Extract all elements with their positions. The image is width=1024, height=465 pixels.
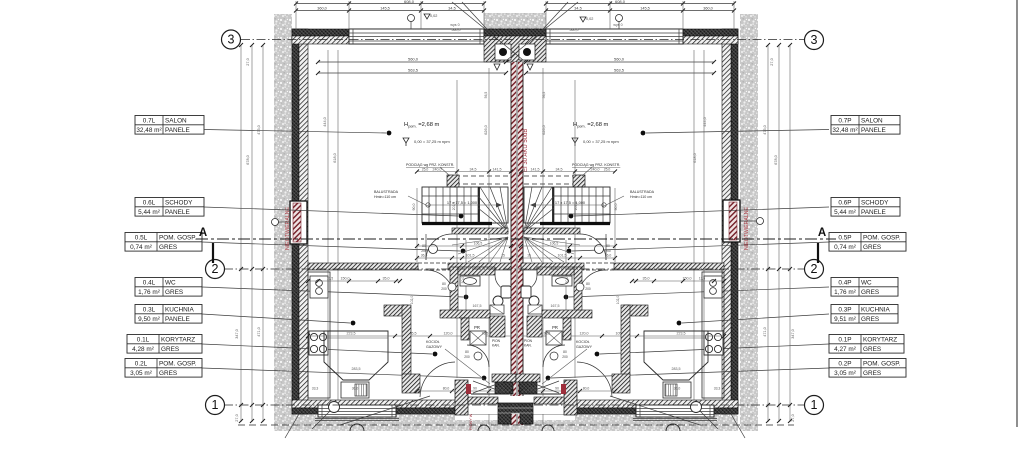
svg-text:0.4L: 0.4L xyxy=(143,280,156,287)
svg-text:50,0: 50,0 xyxy=(461,277,465,284)
svg-text:80: 80 xyxy=(586,282,590,286)
svg-text:PR: PR xyxy=(552,325,558,330)
svg-text:27,0: 27,0 xyxy=(235,414,239,421)
svg-text:KAN.: KAN. xyxy=(524,344,532,348)
svg-text:15: 15 xyxy=(501,254,505,258)
svg-text:678,0: 678,0 xyxy=(246,155,250,165)
svg-text:GRES: GRES xyxy=(159,370,177,377)
svg-text:4,28 m²: 4,28 m² xyxy=(132,346,154,353)
svg-text:80: 80 xyxy=(465,350,469,354)
svg-text:0,02: 0,02 xyxy=(586,17,593,21)
svg-text:27,0: 27,0 xyxy=(791,414,795,421)
svg-text:A: A xyxy=(199,227,207,239)
svg-text:223,5: 223,5 xyxy=(677,332,686,336)
svg-text:106,5: 106,5 xyxy=(550,242,559,246)
svg-text:560,0: 560,0 xyxy=(408,57,419,62)
svg-text:360,0: 360,0 xyxy=(703,7,713,11)
svg-text:GRES: GRES xyxy=(863,346,881,353)
svg-text:2: 2 xyxy=(811,262,818,276)
svg-text:0.6P: 0.6P xyxy=(838,200,851,207)
svg-text:BALUSTRADA: BALUSTRADA xyxy=(630,190,655,194)
svg-text:GRES: GRES xyxy=(161,346,179,353)
svg-text:PANELE: PANELE xyxy=(861,209,886,216)
svg-text:NIEOTWIERALNE: NIEOTWIERALNE xyxy=(744,207,750,250)
svg-text:93,5: 93,5 xyxy=(544,332,551,336)
svg-text:POM. GOSP.: POM. GOSP. xyxy=(159,235,197,242)
svg-text:PANELE: PANELE xyxy=(165,316,190,323)
svg-text:GRES: GRES xyxy=(863,370,881,377)
svg-text:0.3L: 0.3L xyxy=(143,307,156,314)
svg-text:1,76 m²: 1,76 m² xyxy=(138,289,160,296)
svg-text:32,48 m²: 32,48 m² xyxy=(832,127,857,134)
svg-text:13,5: 13,5 xyxy=(699,277,705,281)
svg-text:80,0: 80,0 xyxy=(583,387,590,391)
svg-text:200: 200 xyxy=(464,355,470,359)
svg-text:0,00 = 37,25 m npm: 0,00 = 37,25 m npm xyxy=(583,139,619,144)
svg-text:90,0: 90,0 xyxy=(412,204,416,211)
svg-text:563,5: 563,5 xyxy=(408,68,419,73)
svg-text:0.5P: 0.5P xyxy=(838,235,851,242)
svg-text:17 x 17,5 = 1,000: 17 x 17,5 = 1,000 xyxy=(555,200,586,205)
svg-text:13,5: 13,5 xyxy=(327,277,333,281)
svg-text:200: 200 xyxy=(585,287,591,291)
svg-text:150,0: 150,0 xyxy=(341,277,350,281)
svg-text:145,5: 145,5 xyxy=(380,7,390,11)
svg-text:80: 80 xyxy=(442,282,446,286)
svg-text:471,0: 471,0 xyxy=(763,327,767,337)
svg-text:KOCIOŁ: KOCIOŁ xyxy=(426,340,440,344)
svg-text:475,0: 475,0 xyxy=(257,125,261,135)
svg-text:0.7P: 0.7P xyxy=(838,118,851,125)
svg-text:200: 200 xyxy=(605,249,611,253)
svg-text:618,0: 618,0 xyxy=(333,153,337,163)
svg-text:101,5: 101,5 xyxy=(466,254,475,258)
svg-text:0.7L: 0.7L xyxy=(143,118,156,125)
svg-text:3,05 m²: 3,05 m² xyxy=(834,370,856,377)
svg-text:475,0: 475,0 xyxy=(763,125,767,135)
svg-text:POM. GOSP.: POM. GOSP. xyxy=(159,361,197,368)
svg-text:560,0: 560,0 xyxy=(614,57,625,62)
svg-text:1: 1 xyxy=(212,398,219,412)
svg-text:PANELE: PANELE xyxy=(165,127,190,134)
svg-text:PODCIĄG wg PRZ. KONSTR.: PODCIĄG wg PRZ. KONSTR. xyxy=(572,163,620,167)
svg-text:30,0: 30,0 xyxy=(674,387,681,391)
svg-text:360,0: 360,0 xyxy=(317,7,327,11)
svg-text:33,3: 33,3 xyxy=(312,387,319,391)
svg-text:3: 3 xyxy=(811,33,818,47)
svg-text:0.2L: 0.2L xyxy=(135,361,148,368)
svg-text:PANELE: PANELE xyxy=(861,127,886,134)
svg-text:Hmin=110 cm: Hmin=110 cm xyxy=(374,195,396,199)
svg-text:34,5: 34,5 xyxy=(448,7,455,11)
svg-text:25,0: 25,0 xyxy=(604,168,611,172)
svg-text:GAZOWY: GAZOWY xyxy=(426,345,443,349)
svg-text:2: 2 xyxy=(212,262,219,276)
svg-text:201,5: 201,5 xyxy=(574,202,578,211)
svg-text:223,5: 223,5 xyxy=(347,332,356,336)
svg-text:167,5: 167,5 xyxy=(473,304,482,308)
svg-text:KUCHNIA: KUCHNIA xyxy=(165,307,194,314)
svg-text:106,5: 106,5 xyxy=(474,242,483,246)
svg-text:27,0: 27,0 xyxy=(246,58,250,65)
svg-text:GRES: GRES xyxy=(165,289,183,296)
svg-text:34,5: 34,5 xyxy=(556,168,563,172)
svg-text:33,3: 33,3 xyxy=(714,387,721,391)
svg-text:27,0: 27,0 xyxy=(770,58,774,65)
svg-text:0.1L: 0.1L xyxy=(137,337,150,344)
svg-text:1: 1 xyxy=(811,398,818,412)
svg-text:32,48 m²: 32,48 m² xyxy=(136,127,161,134)
svg-text:201,5: 201,5 xyxy=(452,202,456,211)
svg-text:PANELE: PANELE xyxy=(165,209,190,216)
svg-text:GRES: GRES xyxy=(861,316,879,323)
svg-text:93,5: 93,5 xyxy=(482,332,489,336)
svg-text:0.5L: 0.5L xyxy=(135,235,148,242)
svg-text:80,0: 80,0 xyxy=(443,387,450,391)
svg-text:102,0: 102,0 xyxy=(616,296,620,305)
svg-text:KORYTARZ: KORYTARZ xyxy=(863,337,897,344)
svg-text:626,0: 626,0 xyxy=(542,125,546,135)
svg-text:3: 3 xyxy=(228,33,235,47)
svg-text:GRES: GRES xyxy=(159,244,177,251)
svg-text:90,0: 90,0 xyxy=(614,204,618,211)
svg-text:SALON: SALON xyxy=(861,118,883,125)
svg-text:563,5: 563,5 xyxy=(614,68,625,73)
svg-text:608,0: 608,0 xyxy=(404,0,415,4)
svg-text:25,0: 25,0 xyxy=(422,168,429,172)
svg-text:0.3P: 0.3P xyxy=(838,307,851,314)
svg-text:KORYTARZ: KORYTARZ xyxy=(161,337,195,344)
svg-text:35,0: 35,0 xyxy=(383,277,390,281)
svg-text:NIEOTWIERALNE: NIEOTWIERALNE xyxy=(285,207,291,250)
svg-text:GAZOWY: GAZOWY xyxy=(576,345,593,349)
svg-text:Hmin=110 cm: Hmin=110 cm xyxy=(630,195,652,199)
svg-text:608,0: 608,0 xyxy=(615,0,626,4)
svg-text:5,44 m²: 5,44 m² xyxy=(834,209,856,216)
svg-text:90: 90 xyxy=(473,387,477,391)
svg-text:SCHODY: SCHODY xyxy=(165,200,193,207)
svg-text:240,0: 240,0 xyxy=(433,168,442,172)
svg-text:GRES: GRES xyxy=(863,244,881,251)
svg-text:56,5: 56,5 xyxy=(484,92,488,99)
svg-text:283,5: 283,5 xyxy=(352,367,361,371)
svg-text:WC: WC xyxy=(861,280,872,287)
svg-text:A: A xyxy=(818,227,826,239)
svg-text:471,0: 471,0 xyxy=(257,327,261,337)
svg-text:BALUSTRADA: BALUSTRADA xyxy=(374,190,399,194)
svg-text:120,0: 120,0 xyxy=(580,332,589,336)
svg-text:0,74 m²: 0,74 m² xyxy=(130,244,152,251)
svg-text:WC: WC xyxy=(165,280,176,287)
svg-text:200: 200 xyxy=(421,249,427,253)
svg-text:3,05 m²: 3,05 m² xyxy=(130,370,152,377)
svg-text:101,5: 101,5 xyxy=(558,254,567,258)
svg-text:GRES: GRES xyxy=(861,289,879,296)
svg-text:444,0: 444,0 xyxy=(323,117,327,127)
svg-text:90: 90 xyxy=(555,387,559,391)
svg-text:120,0: 120,0 xyxy=(444,332,453,336)
svg-text:56,5: 56,5 xyxy=(542,92,546,99)
svg-text:0,02: 0,02 xyxy=(430,14,437,18)
svg-text:141,5: 141,5 xyxy=(531,168,540,172)
svg-text:PR: PR xyxy=(474,325,480,330)
svg-text:KUCHNIA: KUCHNIA xyxy=(861,307,890,314)
svg-text:618,0: 618,0 xyxy=(693,153,697,163)
svg-text:PODCIĄG wg PRZ. KONSTR.: PODCIĄG wg PRZ. KONSTR. xyxy=(406,163,454,167)
svg-text:9,50 m²: 9,50 m² xyxy=(138,316,160,323)
svg-text:80: 80 xyxy=(563,350,567,354)
svg-text:wys 0: wys 0 xyxy=(450,23,459,27)
svg-text:347,0: 347,0 xyxy=(235,329,239,339)
svg-text:EI 30 AKU 50dB: EI 30 AKU 50dB xyxy=(523,129,529,172)
svg-text:35,0: 35,0 xyxy=(643,277,650,281)
svg-text:240,0: 240,0 xyxy=(591,168,600,172)
svg-text:POM. GOSP.: POM. GOSP. xyxy=(863,235,901,242)
svg-text:PION: PION xyxy=(524,339,533,343)
svg-text:1,76 m²: 1,76 m² xyxy=(834,289,856,296)
svg-text:0.2P: 0.2P xyxy=(838,361,851,368)
svg-text:167,5: 167,5 xyxy=(551,304,560,308)
svg-text:36,0: 36,0 xyxy=(605,254,612,258)
svg-text:KOCIOŁ: KOCIOŁ xyxy=(576,340,590,344)
svg-text:SALON: SALON xyxy=(165,118,187,125)
svg-text:9,51 m²: 9,51 m² xyxy=(834,316,856,323)
svg-text:34,5: 34,5 xyxy=(470,168,477,172)
svg-text:444,0: 444,0 xyxy=(703,117,707,127)
svg-text:678,0: 678,0 xyxy=(774,155,778,165)
svg-text:PION: PION xyxy=(492,339,501,343)
svg-text:200: 200 xyxy=(441,287,447,291)
svg-text:SCHODY: SCHODY xyxy=(861,200,889,207)
svg-text:0,00 = 37,25 m npm: 0,00 = 37,25 m npm xyxy=(414,139,450,144)
svg-text:5,44 m²: 5,44 m² xyxy=(138,209,160,216)
svg-text:KAN.: KAN. xyxy=(492,344,500,348)
svg-text:141,5: 141,5 xyxy=(493,168,502,172)
svg-text:560,0: 560,0 xyxy=(570,28,579,32)
svg-text:200: 200 xyxy=(562,355,568,359)
svg-text:wys 0: wys 0 xyxy=(613,23,622,27)
svg-text:0.4P: 0.4P xyxy=(838,280,851,287)
svg-text:626,0: 626,0 xyxy=(484,125,488,135)
svg-text:145,5: 145,5 xyxy=(640,7,650,11)
svg-text:30,0: 30,0 xyxy=(352,387,359,391)
svg-text:0.1P: 0.1P xyxy=(838,337,851,344)
svg-text:34,5: 34,5 xyxy=(574,7,581,11)
svg-text:4,27 m²: 4,27 m² xyxy=(834,346,856,353)
svg-text:50,0: 50,0 xyxy=(565,277,569,284)
svg-text:102,0: 102,0 xyxy=(410,296,414,305)
svg-text:347,0: 347,0 xyxy=(791,329,795,339)
svg-text:36,0: 36,0 xyxy=(421,254,428,258)
svg-text:POM. GOSP.: POM. GOSP. xyxy=(863,361,901,368)
svg-text:283,5: 283,5 xyxy=(672,367,681,371)
svg-text:0,74 m²: 0,74 m² xyxy=(834,244,856,251)
svg-text:15: 15 xyxy=(527,254,531,258)
svg-text:0.6L: 0.6L xyxy=(143,200,156,207)
svg-text:560,0: 560,0 xyxy=(452,28,461,32)
